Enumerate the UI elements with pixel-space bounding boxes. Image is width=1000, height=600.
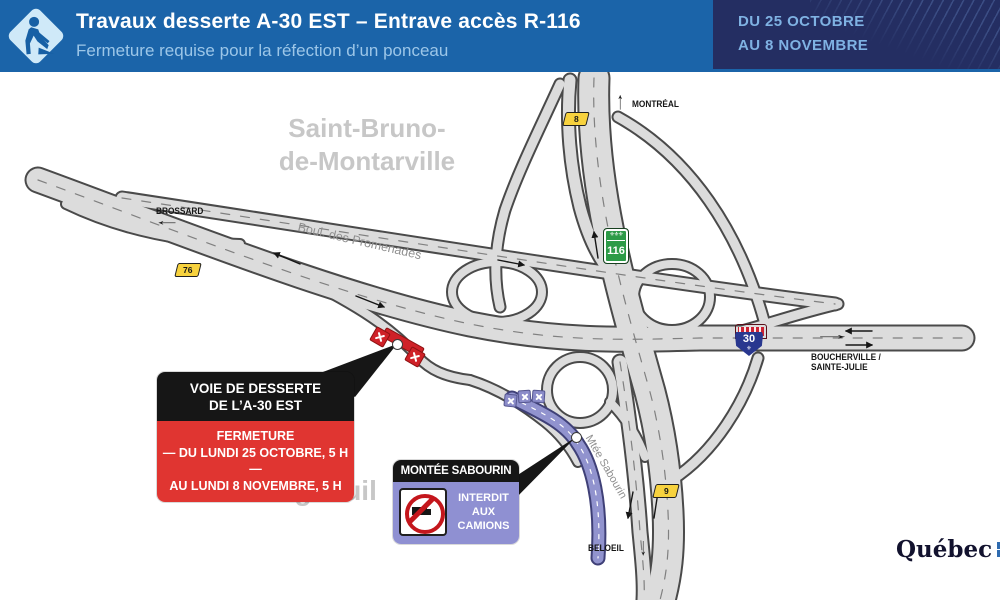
page-title: Travaux desserte A-30 EST – Entrave accè… (76, 10, 581, 34)
callout-desserte: VOIE DE DESSERTE DE L’A-30 EST FERMETURE… (157, 372, 354, 502)
date-panel: DU 25 OCTOBRE AU 8 NOVEMBRE (713, 0, 1000, 69)
ramp-east-south-casing (672, 358, 758, 480)
callout-pointer-sabourin (510, 437, 576, 504)
header-bar: Travaux desserte A-30 EST – Entrave accè… (0, 0, 1000, 75)
quebec-logo: Québec ⚜ ⚜ ⚜ ⚜ (896, 536, 1000, 563)
roadwork-worker-icon (12, 10, 62, 62)
interchange-map: Saint-Bruno- de-Montarville Longueuil BR… (0, 72, 1000, 600)
no-trucks-sign-icon (399, 488, 447, 536)
right-arrow-icon: → (812, 328, 854, 341)
restriction-x-icon (518, 390, 532, 404)
up-arrow-icon: ↑ (617, 88, 624, 113)
exit-shield-9: 9 (652, 484, 679, 498)
restriction-x-icon (503, 393, 517, 407)
page-subtitle: Fermeture requise pour la réfection d’un… (76, 41, 448, 61)
callout-sabourin: MONTÉE SABOURIN INTERDIT AUX CAMIONS (393, 460, 519, 544)
quebec-wordmark: Québec (896, 536, 992, 563)
city-label-saint-bruno: Saint-Bruno- de-Montarville (217, 112, 517, 177)
pointer-dot-desserte (392, 339, 403, 350)
loop-northeast (634, 264, 710, 330)
pointer-dot-sabourin (571, 432, 582, 443)
down-arrow-icon: ↓ (640, 534, 647, 559)
autoroute-shield-30: 30 ⚜ (735, 324, 763, 356)
infographic: Travaux desserte A-30 EST – Entrave accè… (0, 0, 1000, 600)
fleur-de-lis-row-icon: ⚜⚜⚜ (607, 231, 625, 241)
dir-label-boucherville: BOUCHERVILLE / SAINTE-JULIE (811, 352, 881, 372)
autoroute-shield-body: 30 ⚜ (735, 332, 763, 356)
date-range-line2: AU 8 NOVEMBRE (738, 37, 868, 54)
dir-label-montreal: MONTRÉAL (632, 99, 679, 109)
exit-shield-8: 8 (562, 112, 589, 126)
dir-label-beloeil: BELOEIL (588, 543, 624, 553)
date-range-line1: DU 25 OCTOBRE (738, 13, 865, 30)
restriction-x-icon (532, 390, 546, 404)
loop-southwest (547, 357, 613, 423)
left-arrow-icon: ← (153, 214, 182, 227)
exit-shield-76: 76 (174, 263, 201, 277)
fleur-de-lis-icon: ⚜ (735, 345, 763, 353)
diagonal-stripes-decoration (810, 0, 1000, 69)
route-shield-116: ⚜⚜⚜ 116 (603, 228, 629, 264)
no-trucks-text: INTERDIT AUX CAMIONS (454, 491, 513, 533)
